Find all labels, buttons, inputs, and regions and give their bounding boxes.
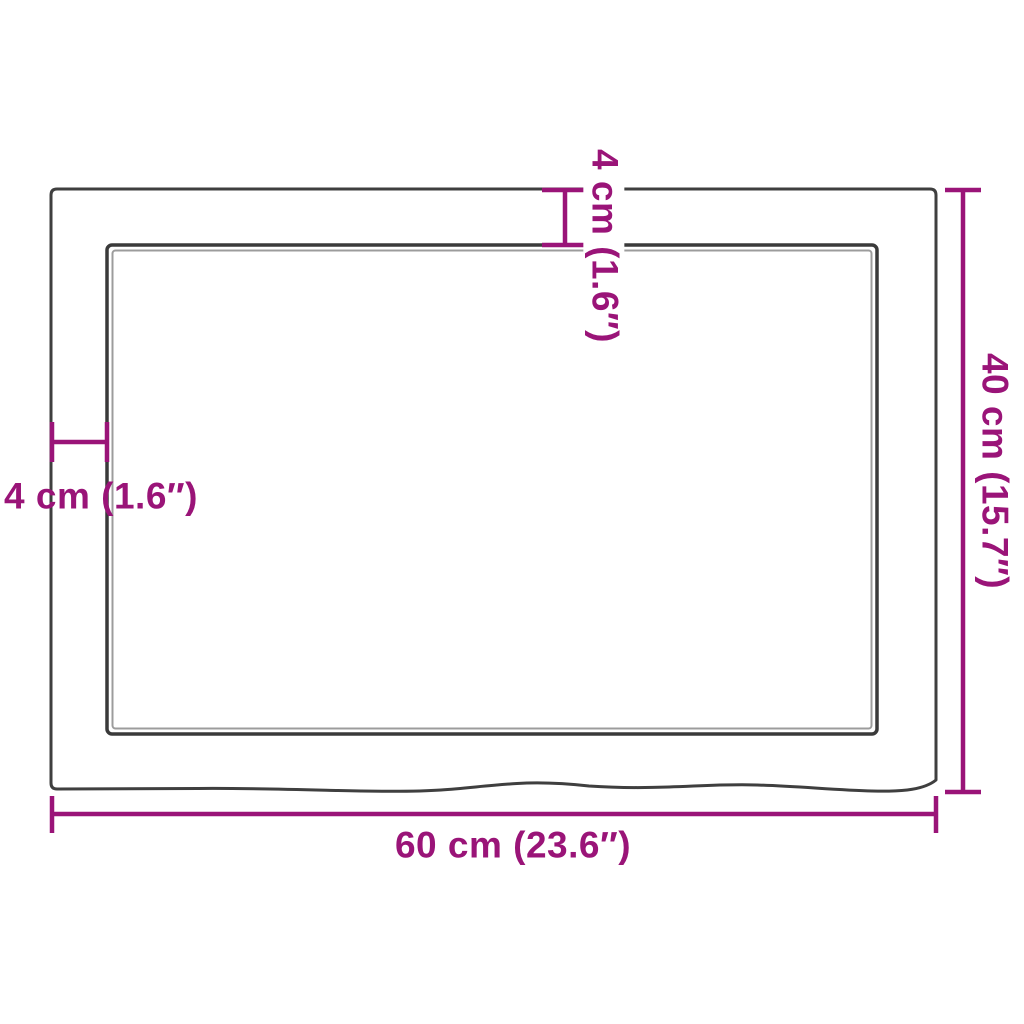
dimension-diagram: 4 cm (1.6″) 4 cm (1.6″) 40 cm (15.7″) 60…	[0, 0, 1024, 1024]
inner-surface-outline	[107, 245, 877, 734]
top-thickness-label: 4 cm (1.6″)	[584, 147, 625, 345]
height-label: 40 cm (15.7″)	[974, 353, 1015, 589]
width-label: 60 cm (23.6″)	[395, 826, 631, 867]
left-thickness-label: 4 cm (1.6″)	[4, 477, 198, 518]
